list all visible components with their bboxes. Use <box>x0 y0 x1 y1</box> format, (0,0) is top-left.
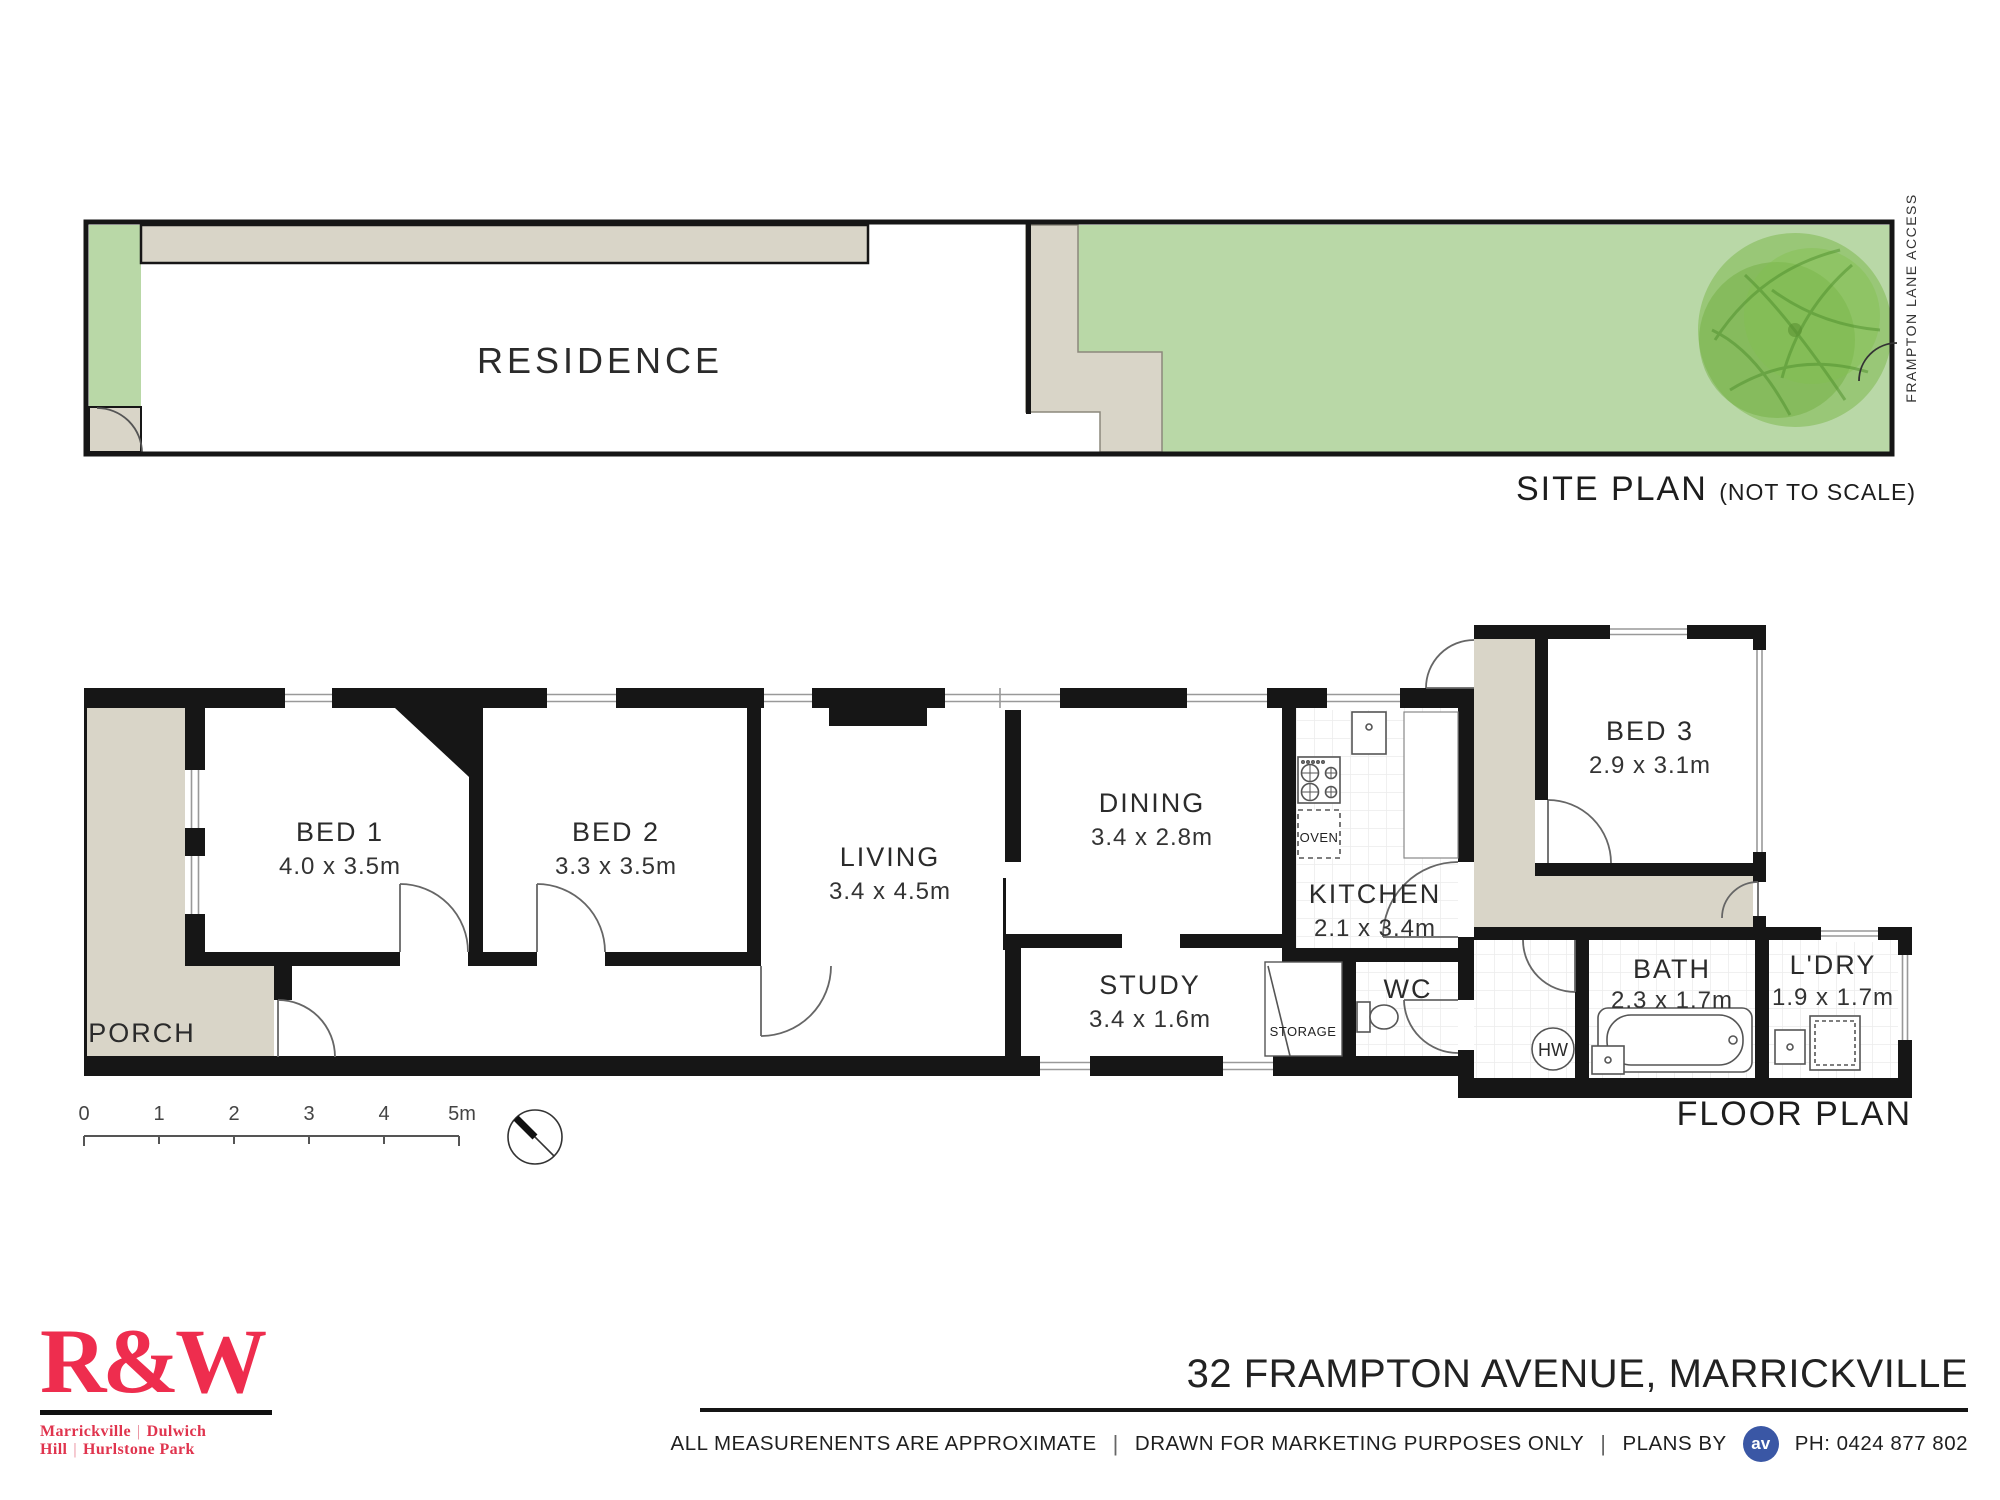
north-arrow-icon <box>508 1110 562 1164</box>
dining-dims: 3.4 x 2.8m <box>1091 824 1213 851</box>
scale-tick-0: 0 <box>78 1103 89 1125</box>
washer-icon <box>1810 1016 1860 1070</box>
plan-canvas: RESIDENCE SITE PLAN (NOT TO SCALE) FRAMP… <box>0 0 2000 1500</box>
wc-label: WC <box>1384 974 1433 1004</box>
footer-disclaimer-row: ALL MEASURENENTS ARE APPROXIMATE | DRAWN… <box>671 1424 1968 1464</box>
kitchen-dims: 2.1 x 3.4m <box>1314 915 1436 942</box>
study-dims: 3.4 x 1.6m <box>1089 1006 1211 1033</box>
footer-pipe: | <box>1600 1431 1606 1457</box>
front-gate-pad <box>89 407 141 452</box>
site-plan-title: SITE PLAN (NOT TO SCALE) <box>1516 470 1916 508</box>
bed2-label: BED 2 <box>572 817 660 847</box>
region-1: Marrickville <box>40 1423 131 1440</box>
oven-label: OVEN <box>1300 830 1339 845</box>
bath-dims: 2.3 x 1.7m <box>1611 987 1733 1014</box>
bed3-door <box>1548 800 1611 863</box>
storage-label: STORAGE <box>1270 1024 1337 1039</box>
bed2-door <box>537 884 605 952</box>
bed3-label: BED 3 <box>1606 716 1694 746</box>
plans-by-label: PLANS BY <box>1622 1432 1726 1456</box>
hw-label: HW <box>1538 1040 1568 1060</box>
cooktop-icon <box>1298 757 1340 803</box>
front-door <box>278 1000 335 1057</box>
living-label: LIVING <box>840 842 941 872</box>
hall-living-door <box>761 966 831 1036</box>
scale-tick-5: 5m <box>448 1103 476 1125</box>
laundry-sink-icon <box>1775 1030 1805 1064</box>
bath-sink-icon <box>1592 1046 1624 1074</box>
toilet-icon <box>1357 1002 1398 1032</box>
scale-tick-3: 3 <box>303 1103 314 1125</box>
storage-closet <box>1265 962 1342 1056</box>
bath-label: BATH <box>1633 954 1711 984</box>
region-pipe: | <box>131 1423 147 1440</box>
side-path <box>141 225 868 263</box>
disclaimer-marketing: DRAWN FOR MARKETING PURPOSES ONLY <box>1135 1432 1584 1456</box>
av-logo-badge: av <box>1743 1426 1779 1462</box>
footer-divider-line <box>700 1408 1968 1412</box>
deck-north-door <box>1426 640 1474 688</box>
living-dims: 3.4 x 4.5m <box>829 878 951 905</box>
bed1-label: BED 1 <box>296 817 384 847</box>
agency-logo: R&W <box>40 1318 280 1404</box>
site-plan: RESIDENCE SITE PLAN (NOT TO SCALE) FRAMP… <box>86 193 1919 508</box>
residence-label: RESIDENCE <box>477 340 723 381</box>
bed1-door <box>400 884 468 952</box>
study-label: STUDY <box>1099 970 1201 1000</box>
footer-pipe: | <box>1113 1431 1119 1457</box>
ldry-dims: 1.9 x 1.7m <box>1772 984 1894 1011</box>
bed2-dims: 3.3 x 3.5m <box>555 853 677 880</box>
lane-access-label: FRAMPTON LANE ACCESS <box>1903 193 1919 402</box>
scale-bar: 0 1 2 3 4 5m <box>78 1103 475 1146</box>
property-address: 32 FRAMPTON AVENUE, MARRICKVILLE <box>1187 1352 1968 1397</box>
plans-phone: PH: 0424 877 802 <box>1795 1432 1968 1456</box>
porch-label: PORCH <box>88 1018 196 1048</box>
floorplan-page: RESIDENCE SITE PLAN (NOT TO SCALE) FRAMP… <box>0 0 2000 1500</box>
rear-fence-line <box>1026 223 1031 414</box>
disclaimer-measurements: ALL MEASURENENTS ARE APPROXIMATE <box>671 1432 1097 1456</box>
kitchen-label: KITCHEN <box>1309 879 1442 909</box>
ldry-label: L'DRY <box>1790 950 1877 980</box>
kitchen-sink-unit <box>1352 712 1386 754</box>
scale-tick-1: 1 <box>153 1103 164 1125</box>
kitchen-counter <box>1404 712 1458 858</box>
tree <box>1698 233 1892 427</box>
agency-regions: Marrickville|Dulwich Hill|Hurlstone Park <box>40 1423 280 1459</box>
dining-label: DINING <box>1099 788 1206 818</box>
region-pipe: | <box>67 1441 83 1458</box>
floor-plan: BED 1 4.0 x 3.5m BED 2 3.3 x 3.5m LIVING… <box>78 623 1912 1164</box>
scale-tick-4: 4 <box>378 1103 389 1125</box>
scale-tick-2: 2 <box>228 1103 239 1125</box>
bed3-dims: 2.9 x 3.1m <box>1589 752 1711 779</box>
region-3: Hurlstone Park <box>83 1441 195 1458</box>
agency-logo-block: R&W Marrickville|Dulwich Hill|Hurlstone … <box>40 1318 280 1459</box>
floor-plan-title: FLOOR PLAN <box>1677 1095 1912 1133</box>
bed1-dims: 4.0 x 3.5m <box>279 853 401 880</box>
